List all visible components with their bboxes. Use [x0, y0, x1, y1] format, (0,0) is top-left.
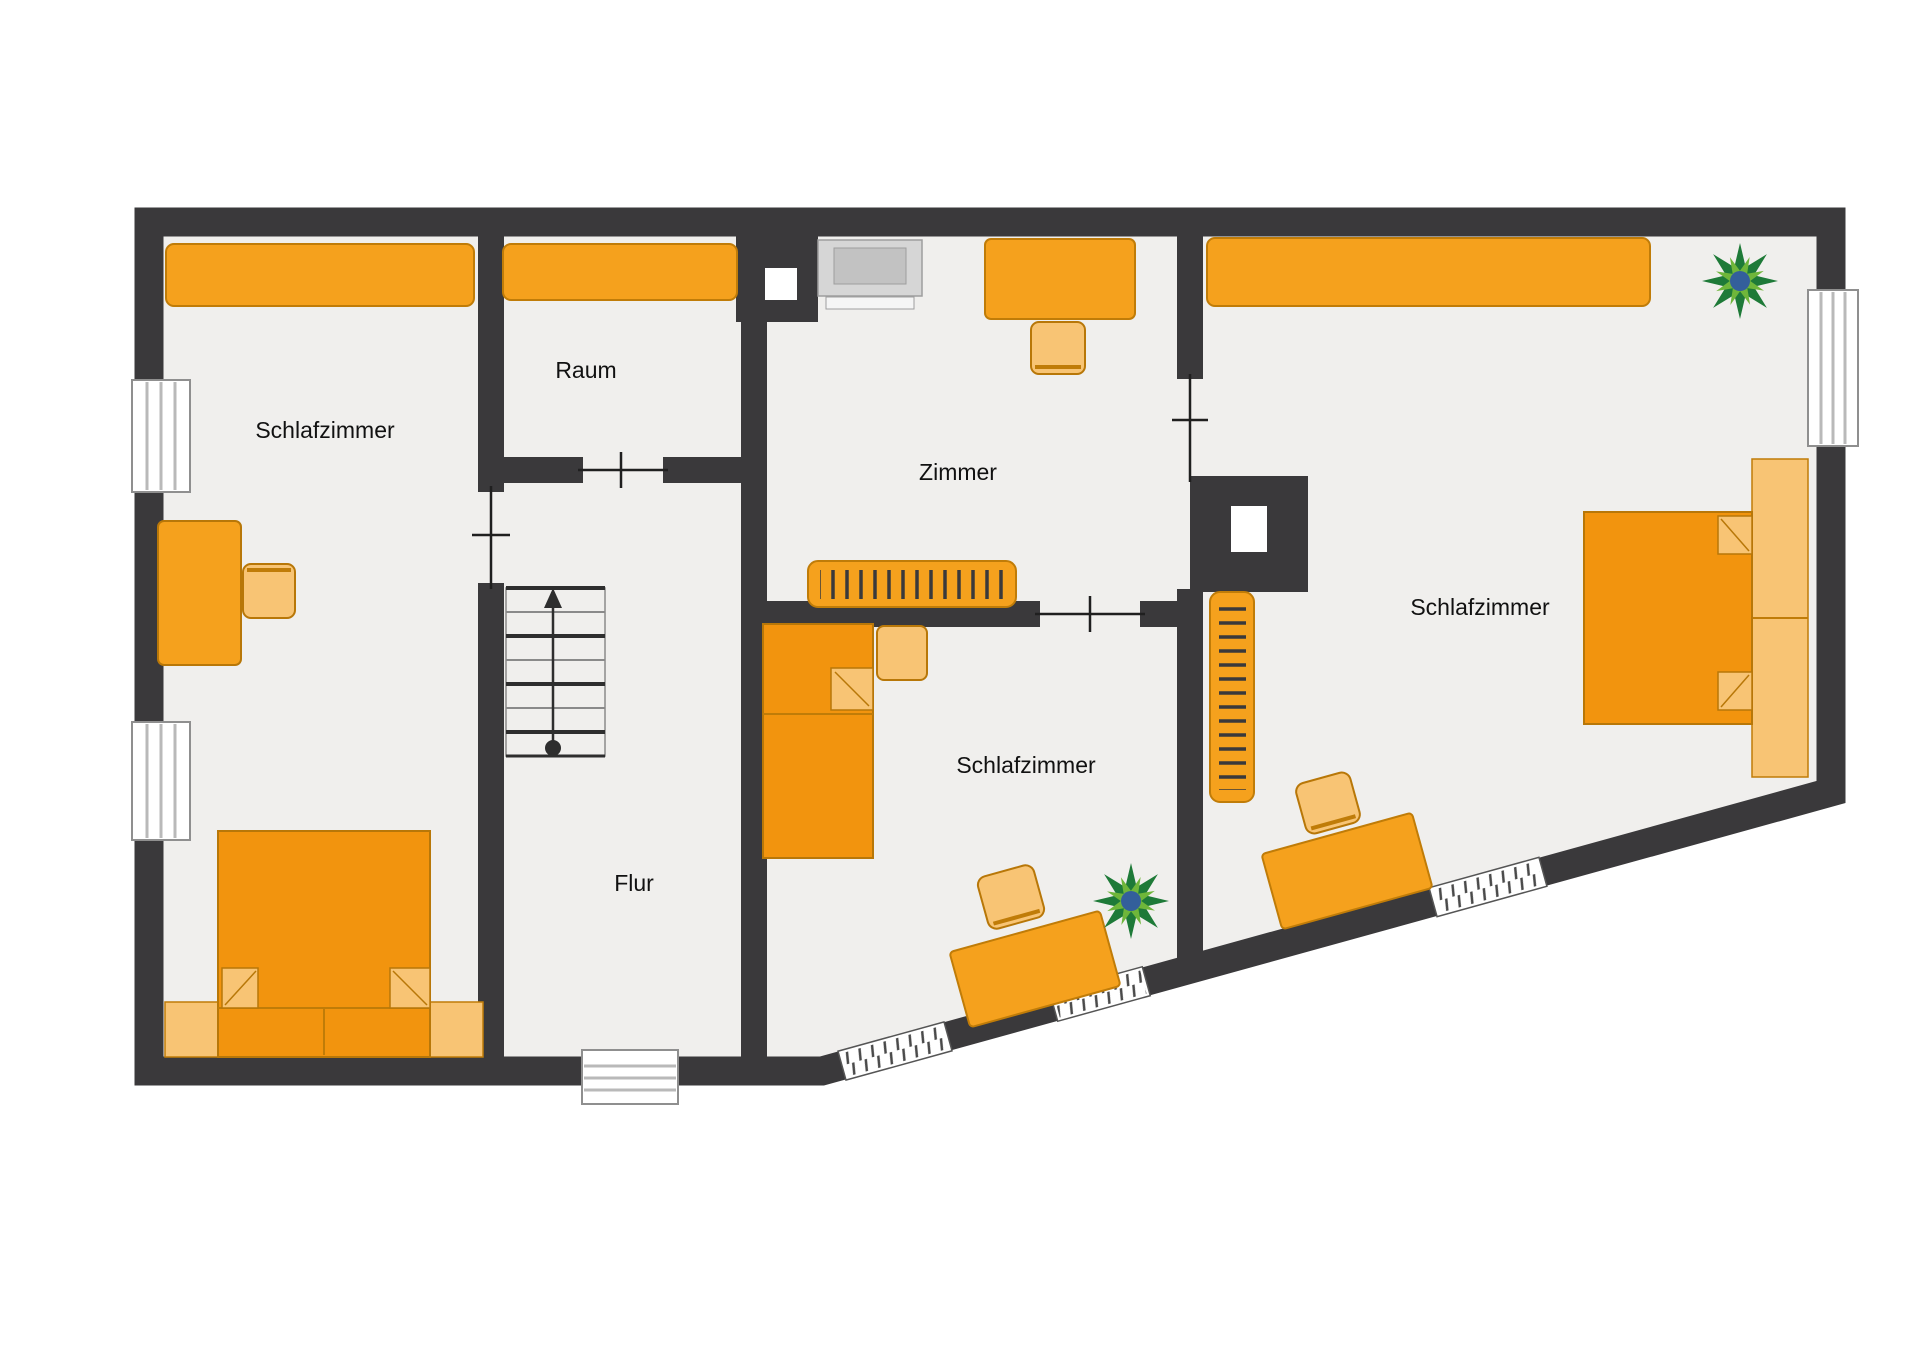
window-left-upper — [132, 380, 190, 492]
chimney-right-room — [1190, 476, 1308, 592]
wardrobe — [503, 244, 737, 300]
room-label-flur: Flur — [614, 870, 654, 896]
bed-pillow — [1718, 516, 1752, 554]
room-label-schlafzimmer-right: Schlafzimmer — [1410, 594, 1550, 620]
window-right-wall — [1808, 290, 1858, 446]
single-bed — [763, 624, 873, 858]
tv-icon — [818, 240, 922, 309]
room-label-schlafzimmer-middle: Schlafzimmer — [956, 752, 1096, 778]
floor-plan-canvas: Schlafzimmer Raum Zimmer Schlafzimmer Sc… — [0, 0, 1920, 1358]
hanger-wardrobe — [808, 561, 1016, 607]
chimney-zimmer — [736, 210, 818, 322]
chair — [243, 564, 295, 618]
room-label-schlafzimmer-left: Schlafzimmer — [255, 417, 395, 443]
wardrobe — [1207, 238, 1650, 306]
window-flur-bottom — [582, 1050, 678, 1104]
wardrobe — [166, 244, 474, 306]
plant-icon — [1093, 863, 1169, 939]
bed-pillow — [1718, 672, 1752, 710]
bed-pillow — [222, 968, 258, 1008]
nightstand — [877, 626, 927, 680]
bed-pillow — [390, 968, 430, 1008]
desk — [985, 239, 1135, 319]
chair — [1031, 322, 1085, 374]
desk — [158, 521, 241, 665]
room-label-raum: Raum — [555, 357, 616, 383]
plant-icon — [1702, 243, 1778, 319]
chimney-flue — [765, 268, 797, 300]
chimney-flue — [1231, 506, 1267, 552]
window-left-lower — [132, 722, 190, 840]
hanger-wardrobe — [1210, 592, 1254, 802]
room-label-zimmer: Zimmer — [919, 459, 997, 485]
bed-pillow — [831, 668, 873, 710]
